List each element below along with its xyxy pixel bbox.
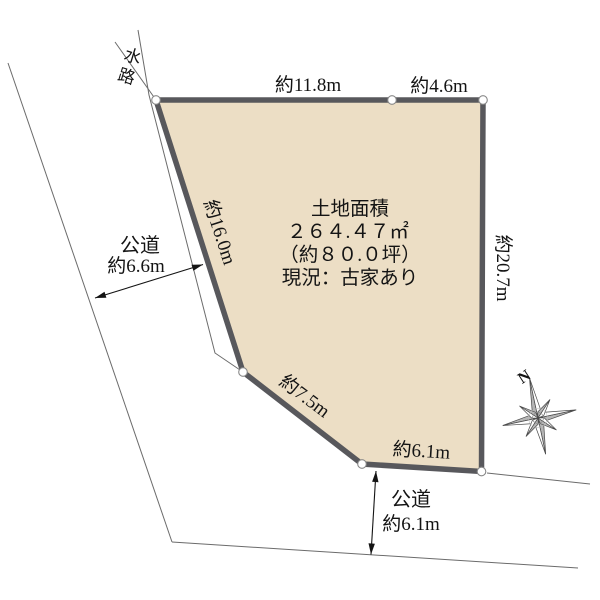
road-left-name: 公道 bbox=[120, 234, 160, 257]
vertex-dot bbox=[479, 96, 488, 105]
road-edge-right-of-plot bbox=[487, 473, 590, 484]
plot-diagram-canvas: N 約11.8m 約4.6m 約20.7m 約16.0m 約7.5m 約6.1m… bbox=[0, 0, 600, 600]
road-left-width: 約6.6m bbox=[107, 255, 165, 277]
dimension-bottom: 約6.1m bbox=[392, 438, 451, 463]
vertex-dot bbox=[239, 368, 248, 377]
parcel-status: 現況：古家あり bbox=[282, 267, 419, 289]
road-bottom-name: 公道 bbox=[391, 488, 431, 511]
road-bottom-outer-edge bbox=[172, 542, 578, 568]
vertex-dot bbox=[477, 467, 486, 476]
road-left-outer-edge bbox=[8, 63, 172, 542]
land-plot-diagram: N 約11.8m 約4.6m 約20.7m 約16.0m 約7.5m 約6.1m… bbox=[0, 0, 600, 600]
road-bottom-width: 約6.1m bbox=[382, 513, 440, 535]
dimension-top-right: 約4.6m bbox=[410, 75, 468, 97]
parcel-area-m2: ２６４.４７㎡ bbox=[287, 220, 409, 243]
parcel-area-title: 土地面積 bbox=[311, 198, 389, 220]
dimension-top-left: 約11.8m bbox=[275, 74, 342, 96]
vertex-dot bbox=[388, 96, 397, 105]
compass-rose-icon bbox=[494, 370, 584, 462]
parcel-area-tsubo: （約８０.０坪） bbox=[279, 244, 420, 266]
vertex-dot bbox=[152, 96, 161, 105]
vertex-dot bbox=[358, 460, 367, 469]
dimension-right: 約20.7m bbox=[492, 234, 514, 301]
road-bottom-width-arrow bbox=[369, 471, 379, 555]
